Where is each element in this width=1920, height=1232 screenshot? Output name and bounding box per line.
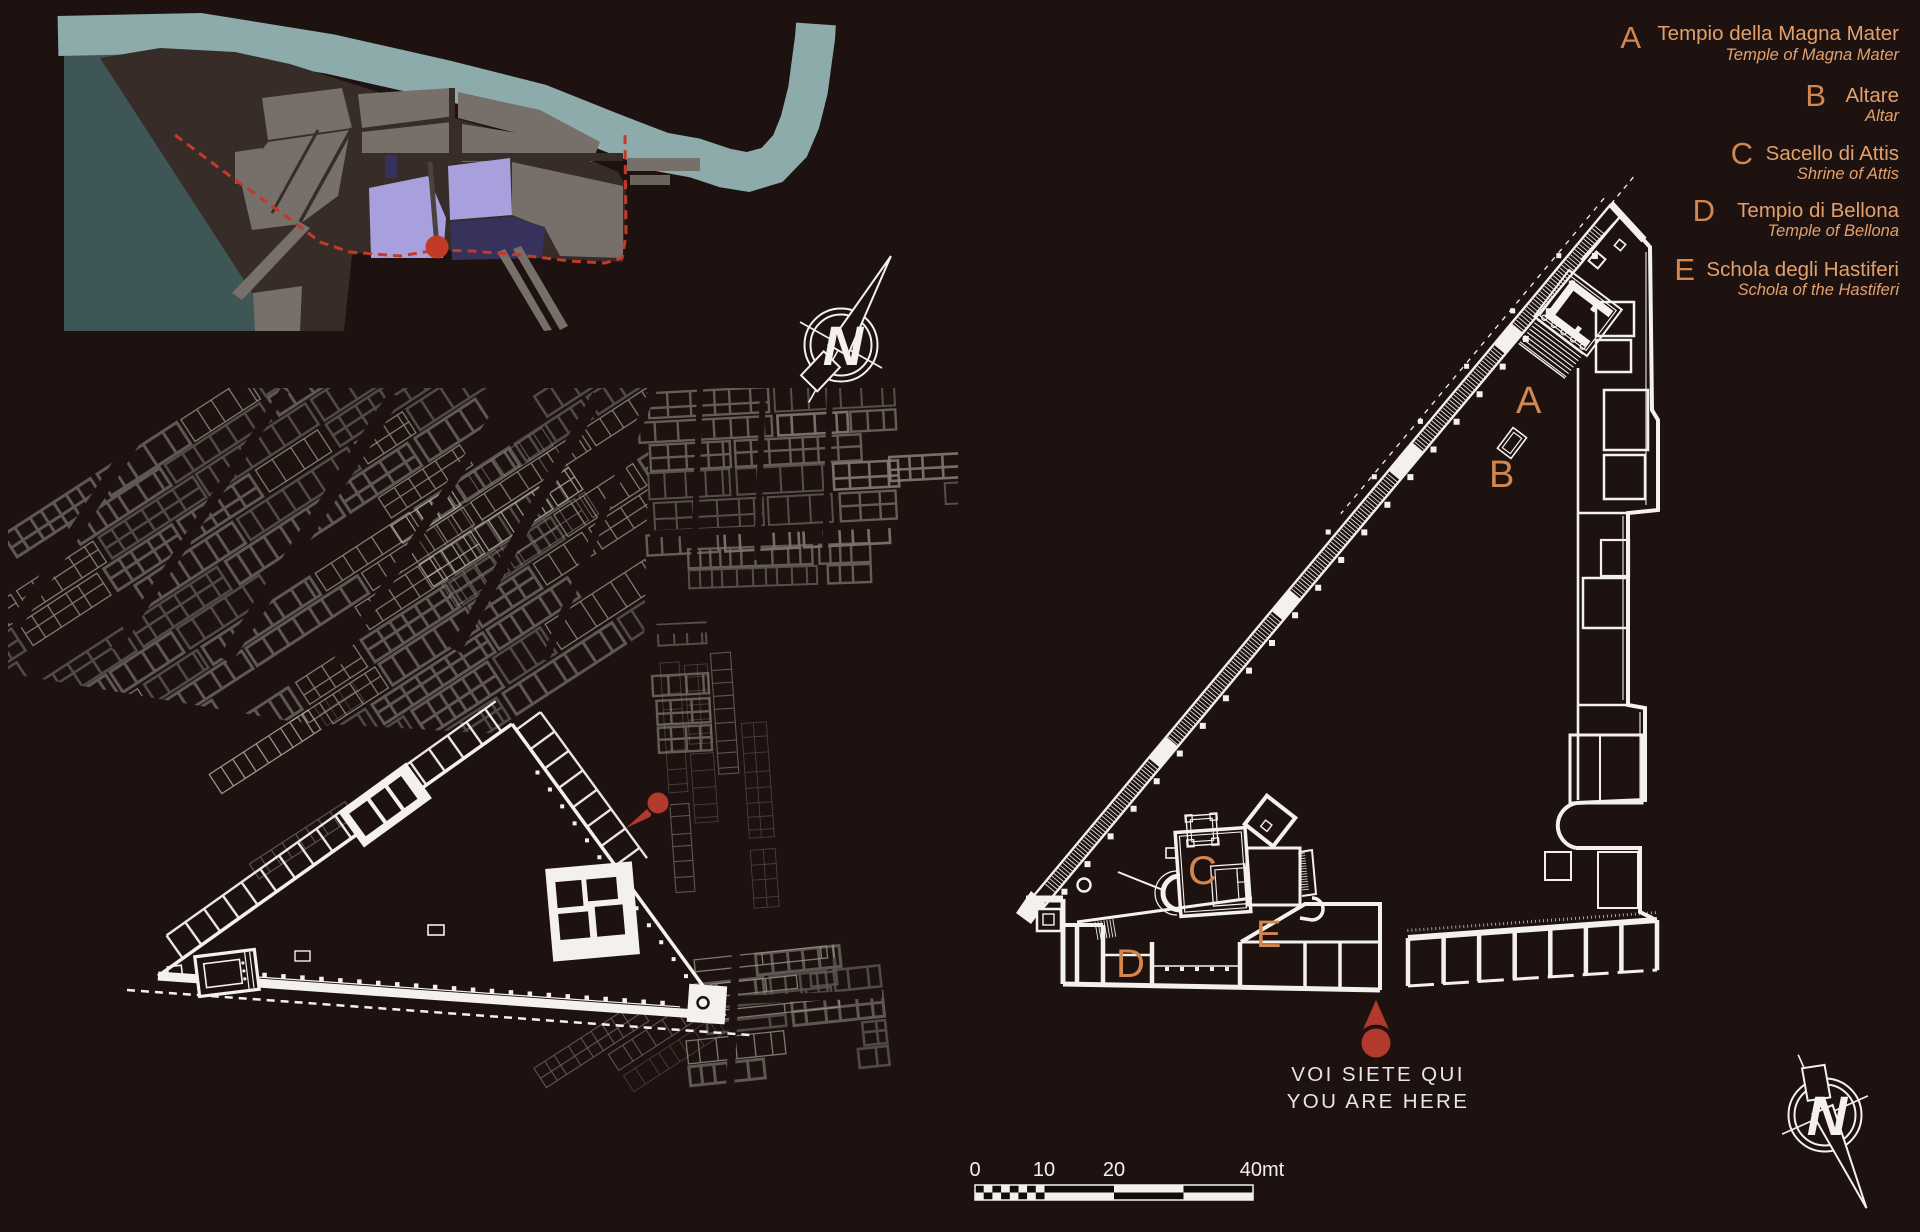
svg-text:A: A bbox=[1516, 380, 1542, 422]
svg-text:0: 0 bbox=[969, 1159, 980, 1181]
svg-text:Tempio di Bellona: Tempio di Bellona bbox=[1737, 199, 1899, 222]
svg-text:B: B bbox=[1805, 78, 1826, 113]
svg-text:Temple of Bellona: Temple of Bellona bbox=[1768, 222, 1899, 240]
svg-text:E: E bbox=[1256, 914, 1281, 956]
svg-text:D: D bbox=[1116, 942, 1145, 986]
svg-text:C: C bbox=[1731, 136, 1753, 171]
svg-text:Schola degli Hastiferi: Schola degli Hastiferi bbox=[1706, 258, 1899, 281]
svg-text:Tempio della Magna Mater: Tempio della Magna Mater bbox=[1657, 22, 1899, 45]
svg-text:Sacello di Attis: Sacello di Attis bbox=[1766, 142, 1899, 165]
svg-text:40mt: 40mt bbox=[1240, 1159, 1285, 1181]
svg-text:YOU ARE HERE: YOU ARE HERE bbox=[1287, 1090, 1470, 1113]
svg-text:E: E bbox=[1674, 252, 1695, 287]
svg-text:D: D bbox=[1693, 193, 1715, 228]
svg-text:A: A bbox=[1620, 20, 1641, 55]
svg-text:Shrine of Attis: Shrine of Attis bbox=[1797, 165, 1899, 183]
svg-text:Altare: Altare bbox=[1845, 84, 1899, 107]
svg-text:Altar: Altar bbox=[1864, 107, 1900, 125]
svg-text:20: 20 bbox=[1103, 1159, 1125, 1181]
svg-text:N: N bbox=[823, 314, 865, 377]
svg-text:N: N bbox=[1807, 1084, 1849, 1147]
svg-text:Temple of Magna Mater: Temple of Magna Mater bbox=[1725, 46, 1900, 64]
svg-text:Schola of the Hastiferi: Schola of the Hastiferi bbox=[1738, 281, 1901, 299]
svg-text:B: B bbox=[1489, 454, 1514, 496]
svg-text:10: 10 bbox=[1033, 1159, 1055, 1181]
svg-text:C: C bbox=[1188, 849, 1217, 893]
svg-text:VOI SIETE QUI: VOI SIETE QUI bbox=[1291, 1063, 1465, 1086]
